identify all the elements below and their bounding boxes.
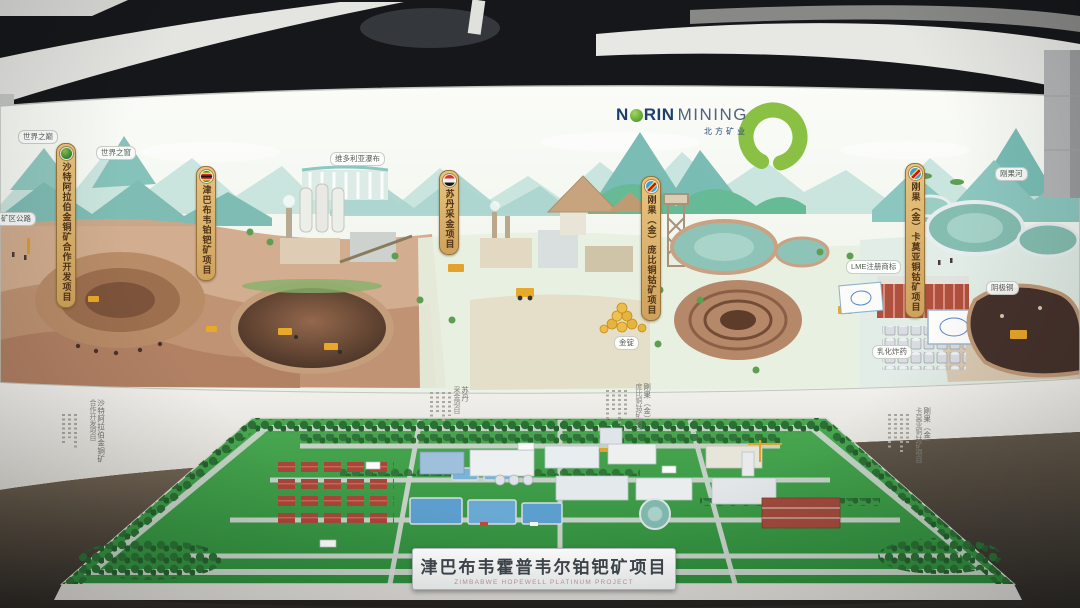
banner-label: 津巴布韦铂钯矿项目 xyxy=(202,185,211,275)
wall-caption-lines xyxy=(62,414,77,448)
emulsion-explosive-label: 乳化炸药 xyxy=(872,345,912,359)
wall-text-sudan: 苏丹 采金项目 xyxy=(452,386,469,446)
model-nameplate: 津巴布韦霍普韦尔铂钯矿项目 ZIMBABWE HOPEWELL PLATINUM… xyxy=(412,548,676,590)
banner-saudi: 沙特阿拉伯金铜矿合作开发项目 xyxy=(56,143,76,308)
sudan-flag-icon xyxy=(443,174,456,187)
norin-mining-logo: N RIN MINING 北方矿业 xyxy=(616,105,748,137)
banner-sudan: 苏丹采金项目 xyxy=(439,170,459,255)
logo-text-cn: 北方矿业 xyxy=(616,126,748,137)
gold-ingots-label: 金锭 xyxy=(614,336,639,350)
right-pillar xyxy=(1044,50,1080,198)
victoria-falls-art xyxy=(302,167,388,200)
norin-globe-icon xyxy=(630,109,643,122)
banner-drc-kamoya: 刚果（金）卡莫亚铜钴矿项目 xyxy=(905,163,925,318)
banner-label: 刚果（金）庞比铜钴矿项目 xyxy=(647,195,656,315)
banner-zimbabwe: 津巴布韦铂钯矿项目 xyxy=(196,166,216,281)
road-label: 矿区公路 xyxy=(0,212,36,226)
banner-label: 苏丹采金项目 xyxy=(445,189,454,249)
banner-drc-pumpi: 刚果（金）庞比铜钴矿项目 xyxy=(641,176,661,321)
peak-label: 世界之巅 xyxy=(18,130,58,144)
lme-brand-label: LME注册商标 xyxy=(846,260,901,274)
copper-cathode-label: 阴极铜 xyxy=(986,281,1019,295)
logo-text-mining: MINING xyxy=(678,105,748,125)
banner-label: 沙特阿拉伯金铜矿合作开发项目 xyxy=(62,162,71,302)
congo-river-label: 刚果河 xyxy=(995,167,1028,181)
rock-cavern-right xyxy=(968,286,1080,376)
exhibition-photo: N RIN MINING 北方矿业 沙特阿拉伯金铜矿合作开发项目 津巴布韦铂钯矿… xyxy=(0,0,1080,608)
wall-caption-lines xyxy=(606,390,627,424)
zimbabwe-flag-icon xyxy=(200,170,213,183)
nameplate-title-en: ZIMBABWE HOPEWELL PLATINUM PROJECT xyxy=(415,579,673,586)
window-of-world-label: 世界之窗 xyxy=(96,146,136,160)
banner-label: 刚果（金）卡莫亚铜钴矿项目 xyxy=(911,182,920,312)
victoria-falls-label: 维多利亚瀑布 xyxy=(330,152,385,166)
wall-caption-lines xyxy=(888,414,909,452)
nameplate-title-cn: 津巴布韦霍普韦尔铂钯矿项目 xyxy=(415,553,673,578)
wall-caption-lines xyxy=(430,392,451,422)
wall-text-drc-pumpi: 刚果（金） 庞比铜钴矿项目 xyxy=(634,383,651,447)
wall-text-saudi: 沙特阿拉伯金铜矿 合作开发项目 xyxy=(88,399,105,465)
wall-text-drc-kamoya: 刚果（金） 卡莫亚铜钴矿项目 xyxy=(914,407,931,477)
logo-text-n: N xyxy=(616,105,629,125)
logo-text-rin: RIN xyxy=(644,105,675,125)
drc-flag-icon xyxy=(909,167,922,180)
drc-flag-icon xyxy=(645,180,658,193)
norin-medallion-icon xyxy=(60,147,73,160)
